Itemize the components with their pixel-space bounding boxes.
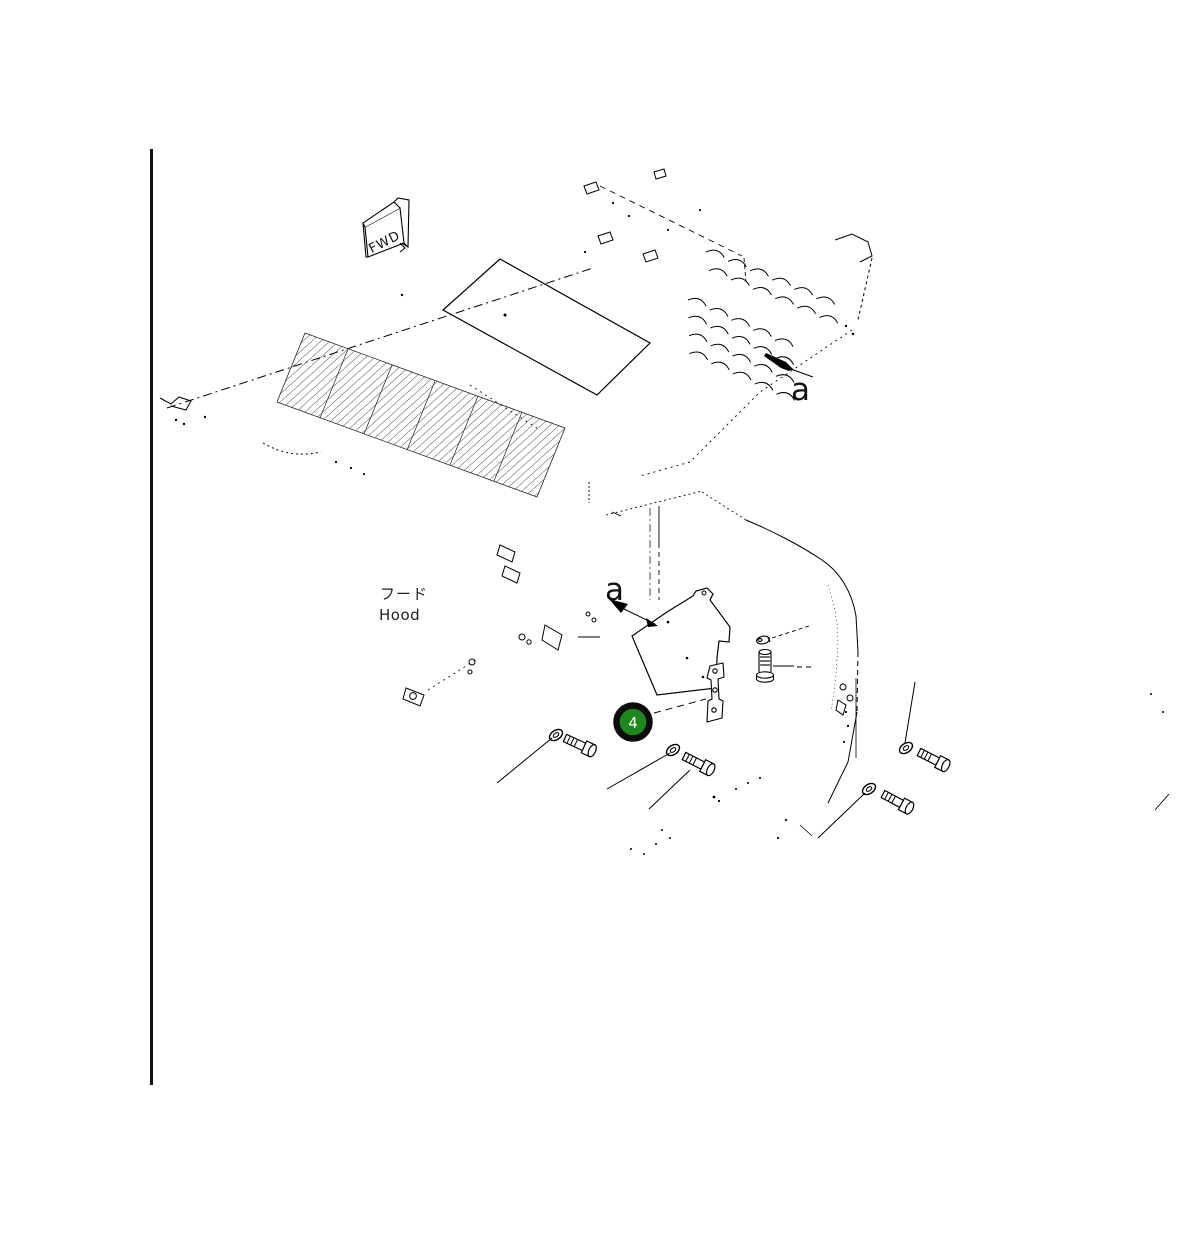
- part-callout[interactable]: 4: [617, 706, 650, 739]
- arrow-head-icon: [764, 353, 793, 371]
- part-name-english: Hood: [379, 606, 420, 624]
- bottom-specks: [630, 777, 761, 855]
- leader-line: [649, 770, 690, 809]
- washer: [664, 742, 681, 758]
- far-right-marks: [1150, 693, 1169, 810]
- part-name-japanese: フード: [380, 585, 428, 603]
- callout-leader-line: [654, 699, 706, 713]
- parts-diagram-canvas: FWD: [0, 0, 1201, 1237]
- fasteners: [497, 682, 952, 838]
- leader-line: [818, 793, 865, 838]
- hood-center-dashed-line-2: [744, 258, 746, 282]
- left-hinge-bracket: [160, 397, 206, 425]
- bolt: [880, 788, 916, 815]
- small-parts-cluster: [403, 545, 596, 706]
- fender-arc: [263, 443, 321, 454]
- part-name-block: フード Hood: [379, 585, 428, 624]
- part-callout-number[interactable]: 4: [628, 714, 638, 732]
- hood-center-dashed-line: [600, 186, 742, 256]
- hood-top-panel: [443, 259, 650, 395]
- hinge-detail: [836, 678, 856, 758]
- bolt: [916, 746, 952, 773]
- clip-leader-line: [772, 626, 809, 638]
- parts-diagram-page: FWD: [0, 0, 1201, 1237]
- mesh-grille: [277, 333, 565, 497]
- clip-part: [756, 635, 770, 645]
- leader-line: [497, 738, 552, 783]
- leader-line: [905, 682, 915, 743]
- mounting-bracket: [707, 663, 724, 722]
- page-border-line: [150, 149, 153, 1085]
- bolt: [562, 732, 598, 758]
- hood-clips: [584, 169, 666, 262]
- washer: [547, 727, 564, 743]
- hood-detail-view: [403, 482, 1169, 855]
- hood-bottom-edge: [640, 330, 852, 476]
- hood-top-assembly: FWD: [160, 169, 872, 497]
- washer: [897, 740, 914, 756]
- shoulder-bolt: [757, 650, 774, 683]
- hood-right-corner: [835, 234, 872, 335]
- leader-line: [607, 753, 670, 789]
- view-arrow-a-top-label: a: [791, 372, 810, 408]
- louver-band-upper: [700, 247, 846, 325]
